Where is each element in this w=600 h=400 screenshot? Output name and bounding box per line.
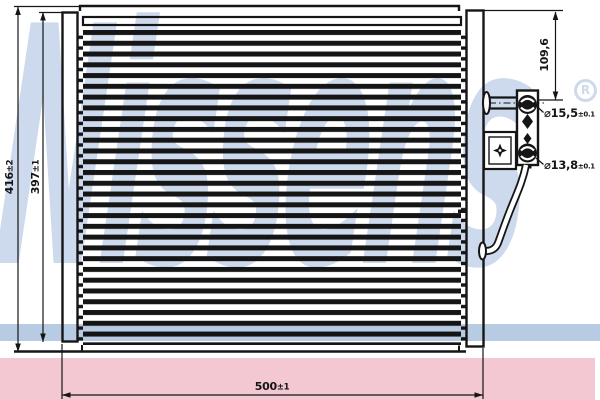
outlet-pipe-flange bbox=[479, 243, 486, 260]
inlet-pipe-flange bbox=[483, 92, 490, 114]
bottom-port-icon bbox=[518, 144, 537, 163]
mounting-block bbox=[484, 132, 516, 169]
core-tube-stack bbox=[83, 30, 461, 345]
dim-overall-height bbox=[14, 7, 80, 353]
outlet-pipe bbox=[484, 165, 527, 251]
dim-label-core-height: 397±1 bbox=[29, 159, 42, 194]
right-header-tank bbox=[467, 11, 484, 347]
top-port-icon bbox=[518, 95, 537, 114]
right-fin-serration bbox=[461, 32, 466, 342]
dim-label-overall-height: 416±2 bbox=[3, 159, 16, 194]
label-top-port-diameter: ⌀15,5±0.1 bbox=[544, 106, 595, 120]
label-bottom-port-diameter: ⌀13,8±0.1 bbox=[544, 158, 595, 172]
top-side-plate bbox=[83, 17, 461, 25]
dim-label-overall-width: 500±1 bbox=[255, 380, 290, 393]
tank-mounting-tab bbox=[458, 210, 467, 214]
top-bracket bbox=[80, 6, 459, 11]
left-fin-serration bbox=[79, 32, 84, 342]
dim-label-port-offset: 109,6 bbox=[538, 38, 551, 72]
dim-core-height bbox=[39, 12, 62, 342]
drawing-linework: 416±2 397±1 500±1 109,6 ⌀15 bbox=[0, 0, 600, 400]
dim-port-offset bbox=[484, 11, 563, 101]
left-header-tank bbox=[63, 13, 78, 342]
condenser-technical-drawing: Nissens R bbox=[0, 0, 600, 400]
